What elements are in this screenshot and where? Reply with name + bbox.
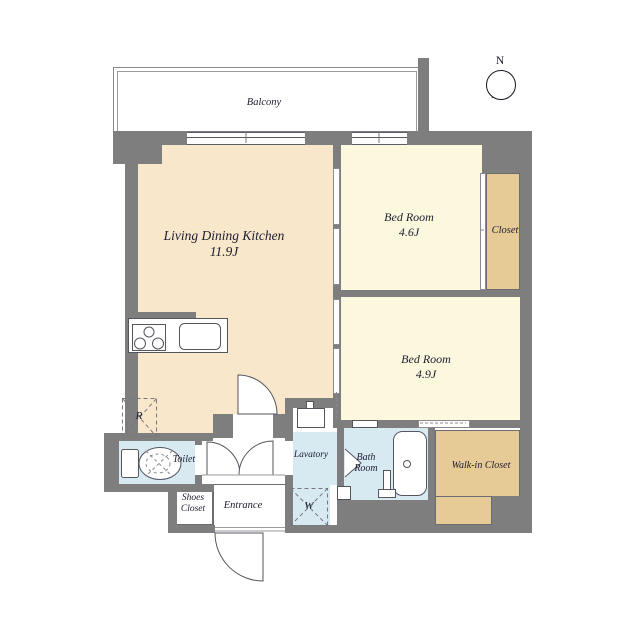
- compass-north-label: N: [486, 55, 514, 67]
- wall-bath-walkin: [428, 428, 435, 500]
- wall-toilet-hall-lower: [195, 475, 202, 492]
- wall-top: [113, 131, 532, 145]
- wall-left: [125, 145, 138, 437]
- balcony-area: [113, 67, 421, 133]
- room-walkin-closet-floor-upper: [435, 430, 520, 497]
- washer-area-floor: [290, 485, 330, 525]
- ldk-hall-doorway: [233, 414, 273, 440]
- window-bedroom1-balcony: [352, 132, 407, 145]
- room-bedroom1-floor: [341, 145, 482, 292]
- wall-ldk-bedroom-partition: [333, 145, 341, 420]
- wall-bath-lavatory: [337, 428, 344, 500]
- room-lavatory-floor: [293, 432, 337, 485]
- wall-hall-top-right: [273, 414, 285, 438]
- walkin-closet-slider-door: [418, 420, 470, 428]
- wall-toilet-hall-upper: [195, 435, 202, 445]
- hallway-floor: [195, 438, 285, 484]
- entrance-threshold: [215, 525, 285, 533]
- wall-kitchen-stub: [125, 312, 196, 319]
- closet-door: [480, 173, 486, 290]
- wall-walkin-notch: [492, 496, 532, 533]
- room-toilet-floor: [119, 441, 195, 484]
- entrance-door-swing: [215, 533, 263, 581]
- wall-between-bedrooms: [333, 290, 532, 297]
- wall-hall-top-left: [213, 414, 233, 438]
- wall-lavatory-top: [285, 398, 337, 408]
- room-bedroom2-floor: [341, 297, 520, 420]
- balcony-divider-wall: [418, 58, 429, 131]
- room-bath-floor: [344, 428, 428, 500]
- wall-above-closet: [482, 145, 520, 173]
- floor-plan: N Balcony Living Dining Kitchen 11.9J Be…: [0, 0, 640, 640]
- wall-below-bath: [337, 500, 435, 533]
- room-lavatory-floor-upper: [293, 408, 337, 432]
- room-walkin-closet-floor-lower: [435, 496, 492, 525]
- room-closet-floor: [486, 173, 520, 290]
- window-ldk-balcony: [187, 132, 305, 145]
- compass-circle: [486, 70, 516, 100]
- balcony-railing: [117, 71, 417, 132]
- wall-right: [520, 131, 532, 533]
- wall-lavatory-left-lower: [285, 475, 293, 525]
- room-shoes-closet-floor: [176, 487, 213, 525]
- room-ldk-floor: [138, 145, 333, 437]
